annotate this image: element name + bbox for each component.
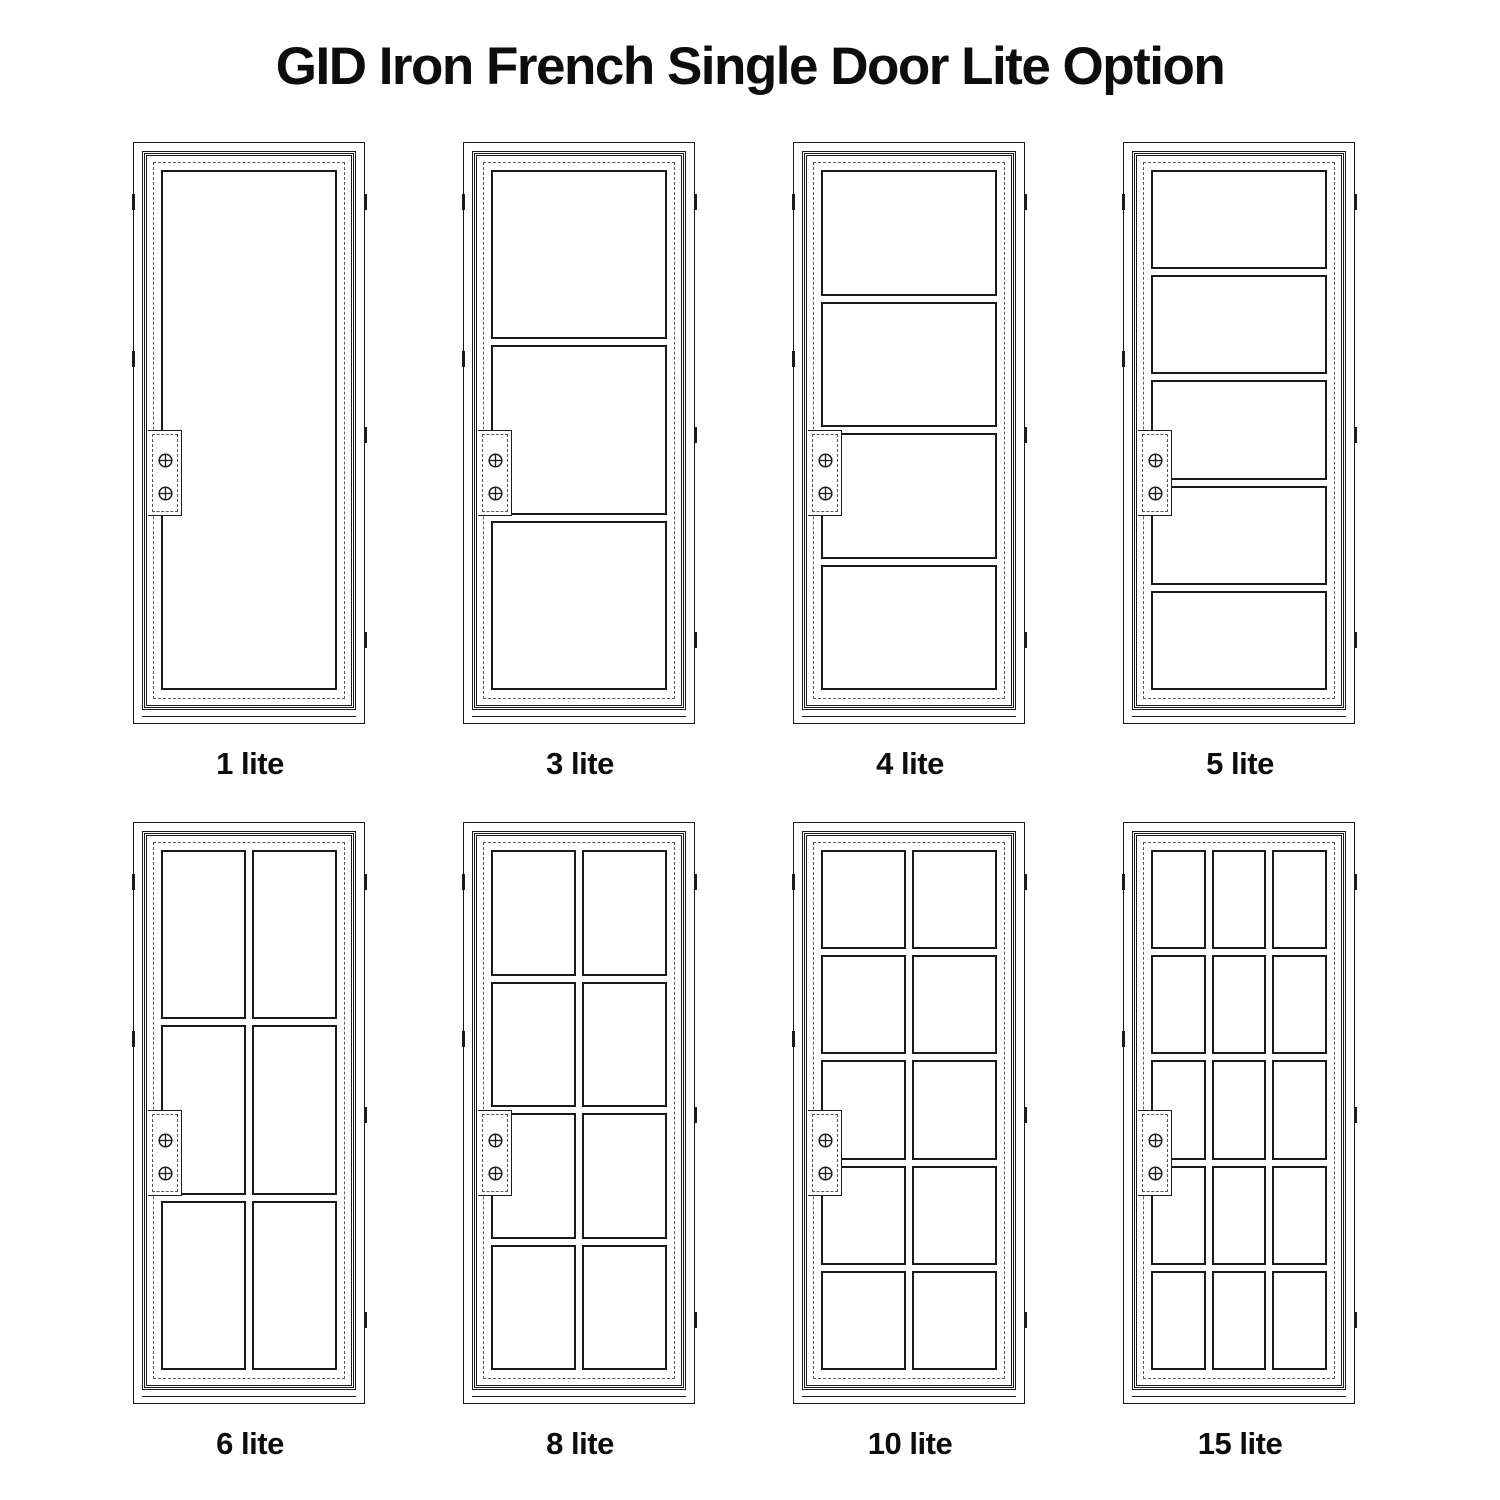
door-bottom-sill <box>472 716 686 717</box>
hinge-tick-icon <box>364 1107 367 1123</box>
glass-pane <box>1212 1271 1267 1370</box>
hinge-tick-icon <box>1024 427 1027 443</box>
glass-pane <box>821 302 997 428</box>
door-bottom-sill <box>1132 1396 1346 1397</box>
door-bottom-sill <box>802 1396 1016 1397</box>
lock-plate <box>478 430 512 516</box>
hinge-tick-icon <box>132 1031 135 1047</box>
glass-pane <box>161 850 246 1019</box>
glass-pane <box>161 170 337 690</box>
door-diagram <box>793 142 1025 724</box>
screw-icon-wrap <box>153 453 168 468</box>
hinge-tick-icon <box>1024 1107 1027 1123</box>
glass-pane <box>1272 1060 1327 1159</box>
screw-icon-wrap <box>813 1166 828 1181</box>
hinge-tick-icon <box>1122 874 1125 890</box>
hinge-tick-icon <box>1024 1312 1027 1328</box>
glass-pane <box>252 1025 337 1194</box>
screw-icon-wrap <box>153 486 168 501</box>
glass-pane <box>582 1245 667 1371</box>
door-option-cell: 1 lite <box>133 142 367 782</box>
hinge-tick-icon <box>1024 632 1027 648</box>
door-diagram <box>463 142 695 724</box>
door-label: 8 lite <box>463 1426 697 1462</box>
door-label: 15 lite <box>1123 1426 1357 1462</box>
hinge-tick-icon <box>462 194 465 210</box>
door-diagram <box>1123 822 1355 1404</box>
hinge-tick-icon <box>1354 427 1357 443</box>
glass-pane <box>821 850 906 949</box>
glass-pane <box>912 1060 997 1159</box>
glass-pane <box>1151 850 1206 949</box>
door-option-cell: 8 lite <box>463 822 697 1462</box>
glass-pane <box>582 1113 667 1239</box>
hinge-tick-icon <box>694 427 697 443</box>
hinge-tick-icon <box>1122 1031 1125 1047</box>
hinge-tick-icon <box>462 351 465 367</box>
hinge-tick-icon <box>132 351 135 367</box>
hinge-tick-icon <box>792 351 795 367</box>
door-option-cell: 3 lite <box>463 142 697 782</box>
hinge-tick-icon <box>1122 351 1125 367</box>
glass-pane <box>1151 955 1206 1054</box>
screw-icon <box>1148 1133 1163 1148</box>
screw-icon-wrap <box>1143 453 1158 468</box>
glass-pane <box>1212 850 1267 949</box>
door-label: 6 lite <box>133 1426 367 1462</box>
screw-icon-wrap <box>1143 1166 1158 1181</box>
screw-icon-wrap <box>813 453 828 468</box>
lock-plate <box>1138 430 1172 516</box>
hinge-tick-icon <box>792 1031 795 1047</box>
screw-icon <box>488 1133 503 1148</box>
glass-pane <box>821 433 997 559</box>
glass-area <box>161 170 337 690</box>
door-bottom-sill <box>142 716 356 717</box>
glass-pane <box>912 850 997 949</box>
screw-icon <box>1148 453 1163 468</box>
glass-area <box>1151 170 1327 690</box>
diagram-sheet: GID Iron French Single Door Lite Option … <box>0 0 1500 1500</box>
hinge-tick-icon <box>1024 194 1027 210</box>
screw-icon-wrap <box>813 486 828 501</box>
screw-icon <box>818 453 833 468</box>
hinge-tick-icon <box>364 427 367 443</box>
door-label: 3 lite <box>463 746 697 782</box>
glass-pane <box>1151 486 1327 585</box>
door-bottom-sill <box>142 1396 356 1397</box>
screw-icon <box>1148 1166 1163 1181</box>
glass-pane <box>1272 1166 1327 1265</box>
hinge-tick-icon <box>1354 1312 1357 1328</box>
screw-icon <box>1148 486 1163 501</box>
glass-pane <box>161 1201 246 1370</box>
glass-pane <box>821 955 906 1054</box>
glass-pane <box>491 850 576 976</box>
glass-pane <box>1151 275 1327 374</box>
glass-pane <box>582 850 667 976</box>
glass-area <box>161 850 337 1370</box>
screw-icon <box>488 1166 503 1181</box>
door-option-cell: 6 lite <box>133 822 367 1462</box>
lock-plate <box>148 430 182 516</box>
door-label: 10 lite <box>793 1426 1027 1462</box>
hinge-tick-icon <box>694 194 697 210</box>
lock-plate <box>1138 1110 1172 1196</box>
glass-pane <box>491 982 576 1108</box>
screw-icon <box>158 486 173 501</box>
screw-icon-wrap <box>153 1133 168 1148</box>
lock-plate <box>148 1110 182 1196</box>
door-option-cell: 5 lite <box>1123 142 1357 782</box>
screw-icon <box>818 1133 833 1148</box>
door-option-cell: 4 lite <box>793 142 1027 782</box>
lock-plate <box>808 1110 842 1196</box>
glass-pane <box>821 565 997 691</box>
glass-pane <box>1212 1166 1267 1265</box>
screw-icon-wrap <box>1143 486 1158 501</box>
lock-plate <box>478 1110 512 1196</box>
door-label: 5 lite <box>1123 746 1357 782</box>
glass-area <box>1151 850 1327 1370</box>
glass-pane <box>1151 170 1327 269</box>
hinge-tick-icon <box>1354 1107 1357 1123</box>
glass-pane <box>491 1245 576 1371</box>
hinge-tick-icon <box>792 874 795 890</box>
door-diagram <box>1123 142 1355 724</box>
screw-icon <box>158 453 173 468</box>
hinge-tick-icon <box>132 194 135 210</box>
door-bottom-sill <box>472 1396 686 1397</box>
glass-pane <box>1151 591 1327 690</box>
glass-pane <box>491 345 667 514</box>
screw-icon-wrap <box>483 1133 498 1148</box>
glass-pane <box>252 1201 337 1370</box>
glass-pane <box>821 170 997 296</box>
glass-pane <box>491 170 667 339</box>
screw-icon-wrap <box>153 1166 168 1181</box>
glass-pane <box>1272 850 1327 949</box>
door-label: 1 lite <box>133 746 367 782</box>
hinge-tick-icon <box>364 194 367 210</box>
screw-icon <box>158 1166 173 1181</box>
glass-pane <box>1151 380 1327 479</box>
door-option-cell: 10 lite <box>793 822 1027 1462</box>
hinge-tick-icon <box>364 632 367 648</box>
door-option-cell: 15 lite <box>1123 822 1357 1462</box>
hinge-tick-icon <box>1354 874 1357 890</box>
glass-area <box>821 170 997 690</box>
door-bottom-sill <box>1132 716 1346 717</box>
screw-icon <box>488 453 503 468</box>
glass-pane <box>582 982 667 1108</box>
hinge-tick-icon <box>462 874 465 890</box>
glass-pane <box>912 955 997 1054</box>
door-diagram <box>133 142 365 724</box>
hinge-tick-icon <box>1354 632 1357 648</box>
hinge-tick-icon <box>694 1107 697 1123</box>
hinge-tick-icon <box>694 632 697 648</box>
screw-icon-wrap <box>1143 1133 1158 1148</box>
door-bottom-sill <box>802 716 1016 717</box>
glass-pane <box>821 1271 906 1370</box>
hinge-tick-icon <box>364 874 367 890</box>
glass-pane <box>912 1271 997 1370</box>
glass-area <box>821 850 997 1370</box>
hinge-tick-icon <box>364 1312 367 1328</box>
screw-icon <box>158 1133 173 1148</box>
door-diagram <box>793 822 1025 1404</box>
hinge-tick-icon <box>462 1031 465 1047</box>
screw-icon-wrap <box>483 486 498 501</box>
hinge-tick-icon <box>694 874 697 890</box>
glass-pane <box>1272 955 1327 1054</box>
hinge-tick-icon <box>694 1312 697 1328</box>
glass-area <box>491 850 667 1370</box>
screw-icon-wrap <box>483 453 498 468</box>
glass-pane <box>1272 1271 1327 1370</box>
screw-icon <box>488 486 503 501</box>
screw-icon-wrap <box>813 1133 828 1148</box>
lock-plate <box>808 430 842 516</box>
glass-pane <box>1151 1271 1206 1370</box>
hinge-tick-icon <box>792 194 795 210</box>
door-diagram <box>133 822 365 1404</box>
screw-icon <box>818 486 833 501</box>
hinge-tick-icon <box>1024 874 1027 890</box>
glass-pane <box>912 1166 997 1265</box>
glass-pane <box>252 850 337 1019</box>
hinge-tick-icon <box>132 874 135 890</box>
door-label: 4 lite <box>793 746 1027 782</box>
screw-icon-wrap <box>483 1166 498 1181</box>
hinge-tick-icon <box>1122 194 1125 210</box>
page-title: GID Iron French Single Door Lite Option <box>0 36 1500 97</box>
screw-icon <box>818 1166 833 1181</box>
glass-pane <box>491 521 667 690</box>
glass-area <box>491 170 667 690</box>
hinge-tick-icon <box>1354 194 1357 210</box>
glass-pane <box>1212 1060 1267 1159</box>
glass-pane <box>1212 955 1267 1054</box>
door-diagram <box>463 822 695 1404</box>
